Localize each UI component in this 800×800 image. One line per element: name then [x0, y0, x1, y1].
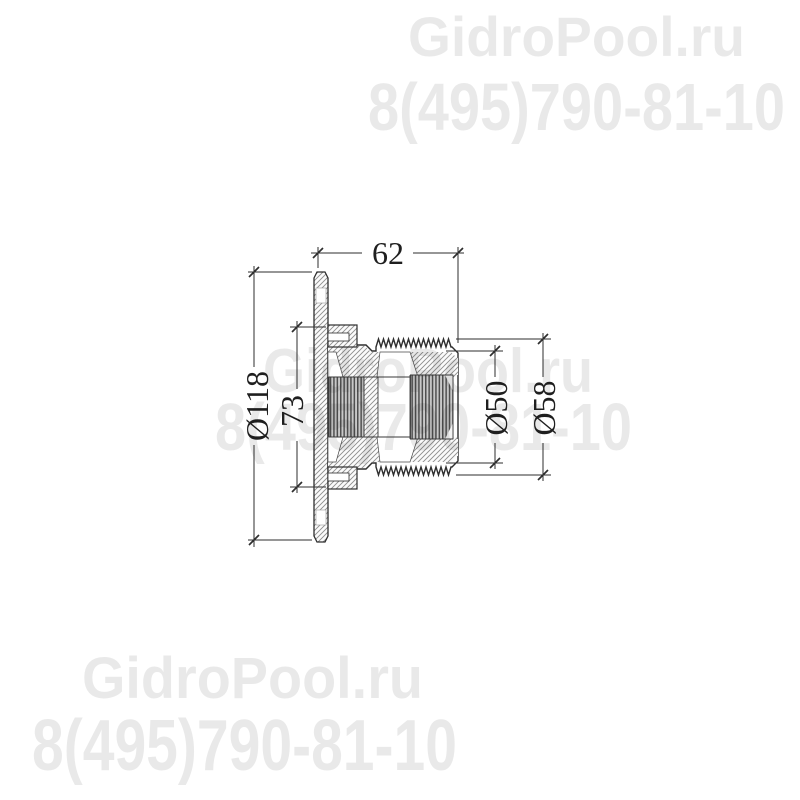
technical-drawing-canvas: 62 Ø118 73 Ø50 Ø58 Gid: [0, 0, 800, 800]
flange-hole-bottom: [316, 510, 326, 525]
watermarks: GidroPool.ru 8(495)790-81-10 GidroPool.r…: [32, 5, 785, 786]
watermark-phone-bottom: 8(495)790-81-10: [32, 706, 457, 786]
screenshot-root: 62 Ø118 73 Ø50 Ø58 Gid: [0, 0, 800, 800]
watermark-site-top: GidroPool.ru: [408, 5, 745, 68]
watermark-site-bottom: GidroPool.ru: [82, 646, 423, 711]
watermark-phone-top: 8(495)790-81-10: [368, 70, 785, 145]
dim-label-length: 62: [372, 235, 404, 271]
watermark-phone-middle: 8(495)790-81-10: [215, 390, 632, 465]
flange-hole-top: [316, 288, 326, 303]
watermark-bottom: GidroPool.ru 8(495)790-81-10: [32, 646, 457, 786]
watermark-top: GidroPool.ru 8(495)790-81-10: [368, 5, 785, 145]
watermark-middle: GidroPool.ru 8(495)790-81-10: [215, 337, 632, 465]
